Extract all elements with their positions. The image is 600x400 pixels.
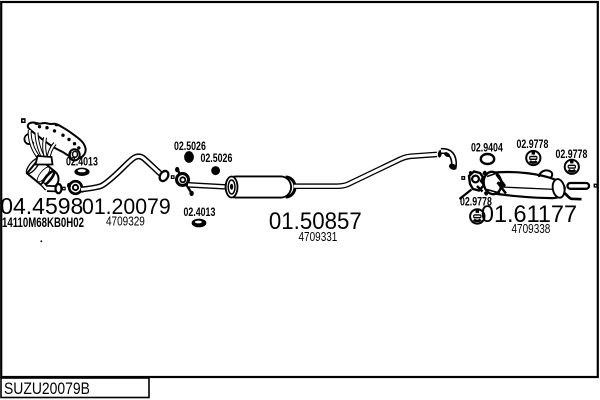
svg-text:4709331: 4709331 — [299, 231, 338, 244]
svg-text:SUZU20079B: SUZU20079B — [4, 380, 90, 399]
svg-text:02.9778: 02.9778 — [556, 149, 588, 161]
svg-text:4709329: 4709329 — [106, 215, 145, 228]
svg-text:02.9404: 02.9404 — [471, 142, 503, 154]
svg-text:14110M68KB0H02: 14110M68KB0H02 — [2, 216, 84, 231]
svg-text:02.5026: 02.5026 — [201, 153, 233, 165]
svg-text:02.9778: 02.9778 — [460, 196, 492, 208]
svg-text:02.4013: 02.4013 — [184, 207, 216, 219]
svg-text:4709338: 4709338 — [512, 223, 551, 236]
svg-text:02.5026: 02.5026 — [174, 141, 206, 153]
svg-text:02.4013: 02.4013 — [66, 156, 98, 168]
svg-text:02.9778: 02.9778 — [517, 139, 549, 151]
